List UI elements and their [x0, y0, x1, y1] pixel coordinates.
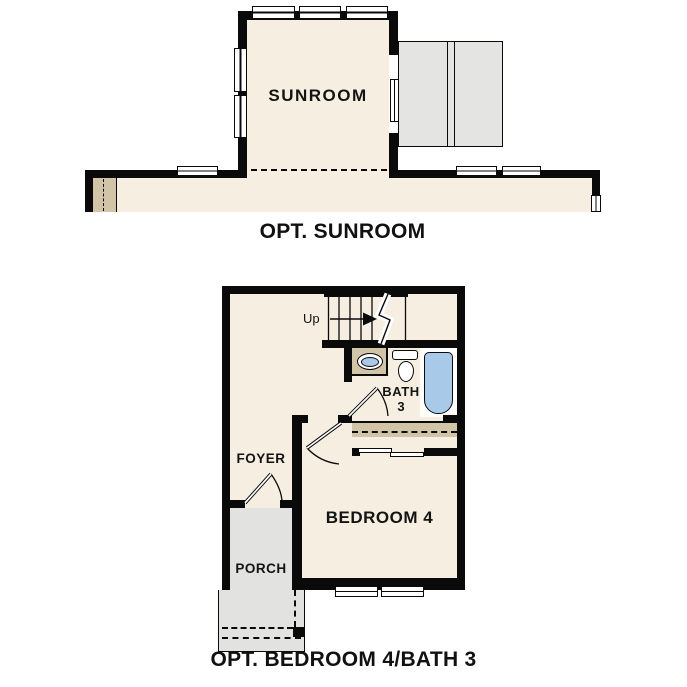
- up-arrow-head: [363, 313, 377, 326]
- floor-plan-figure: SUNROOM OPT. SUNROOM Up BATH 3: [0, 0, 687, 687]
- bedroom-door-leaf-core: [307, 423, 341, 448]
- bath-door-arc: [377, 388, 388, 416]
- linework-overlay: [0, 0, 687, 687]
- bedroom-door-arc: [307, 448, 339, 464]
- bath-door-leaf-core: [349, 388, 377, 416]
- front-door-leaf-core: [245, 474, 271, 503]
- front-door-arc: [271, 474, 282, 501]
